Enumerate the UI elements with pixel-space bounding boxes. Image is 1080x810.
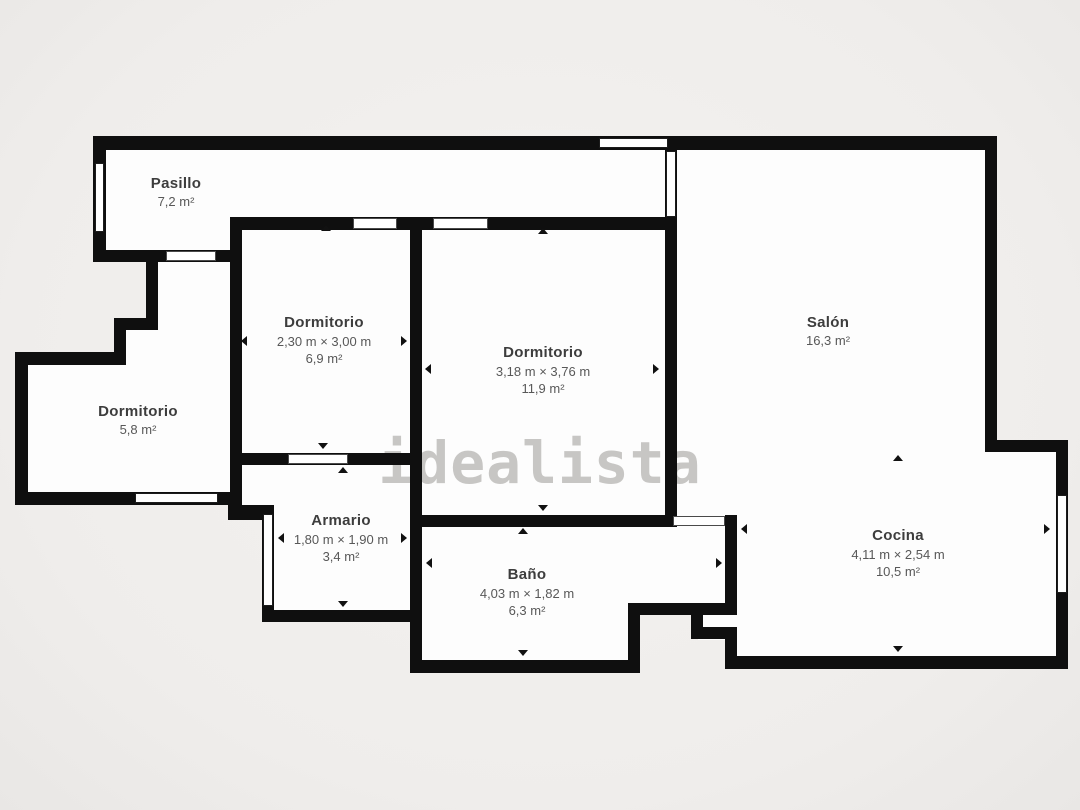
dim-arrow-left-icon (241, 336, 247, 346)
dim-arrow-down-icon (893, 646, 903, 652)
room-area: 6,3 m² (480, 603, 574, 618)
room-name: Salón (806, 314, 850, 331)
dim-arrow-left-icon (426, 558, 432, 568)
room-area: 16,3 m² (806, 333, 850, 348)
dim-arrow-right-icon (401, 533, 407, 543)
dim-arrow-up-icon (321, 225, 331, 231)
room-name: Baño (480, 566, 574, 583)
dim-arrow-down-icon (318, 443, 328, 449)
dim-arrow-up-icon (893, 455, 903, 461)
room-name: Pasillo (151, 175, 201, 192)
room-label-pasillo: Pasillo 7,2 m² (151, 175, 201, 209)
dim-arrow-left-icon (741, 524, 747, 534)
room-name: Cocina (851, 527, 944, 544)
dim-arrow-up-icon (338, 467, 348, 473)
room-label-salon: Salón 16,3 m² (806, 314, 850, 348)
room-area: 11,9 m² (496, 381, 590, 396)
room-area: 3,4 m² (294, 549, 388, 564)
room-dimensions: 3,18 m × 3,76 m (496, 364, 590, 379)
room-area: 10,5 m² (851, 564, 944, 579)
room-label-dormitorio-top: Dormitorio 2,30 m × 3,00 m 6,9 m² (277, 314, 371, 366)
room-name: Dormitorio (496, 344, 590, 361)
room-dimensions: 1,80 m × 1,90 m (294, 532, 388, 547)
dim-arrow-down-icon (518, 650, 528, 656)
room-dimensions: 4,11 m × 2,54 m (851, 547, 944, 562)
room-label-cocina: Cocina 4,11 m × 2,54 m 10,5 m² (851, 527, 944, 579)
room-label-armario: Armario 1,80 m × 1,90 m 3,4 m² (294, 512, 388, 564)
room-label-dormitorio-center: Dormitorio 3,18 m × 3,76 m 11,9 m² (496, 344, 590, 396)
room-name: Armario (294, 512, 388, 529)
room-name: Dormitorio (277, 314, 371, 331)
dim-arrow-right-icon (716, 558, 722, 568)
room-area: 5,8 m² (98, 422, 178, 437)
room-label-dormitorio-left: Dormitorio 5,8 m² (98, 403, 178, 437)
dim-arrow-right-icon (1044, 524, 1050, 534)
room-area: 7,2 m² (151, 194, 201, 209)
room-dimensions: 4,03 m × 1,82 m (480, 586, 574, 601)
dim-arrow-up-icon (518, 528, 528, 534)
dim-arrow-down-icon (538, 505, 548, 511)
room-dimensions: 2,30 m × 3,00 m (277, 334, 371, 349)
dim-arrow-up-icon (538, 228, 548, 234)
dim-arrow-right-icon (653, 364, 659, 374)
floor-plan: idealista (0, 0, 1080, 810)
dim-arrow-down-icon (338, 601, 348, 607)
room-label-bano: Baño 4,03 m × 1,82 m 6,3 m² (480, 566, 574, 618)
dim-arrow-left-icon (425, 364, 431, 374)
dim-arrow-left-icon (278, 533, 284, 543)
dim-arrow-right-icon (401, 336, 407, 346)
room-name: Dormitorio (98, 403, 178, 420)
room-area: 6,9 m² (277, 351, 371, 366)
